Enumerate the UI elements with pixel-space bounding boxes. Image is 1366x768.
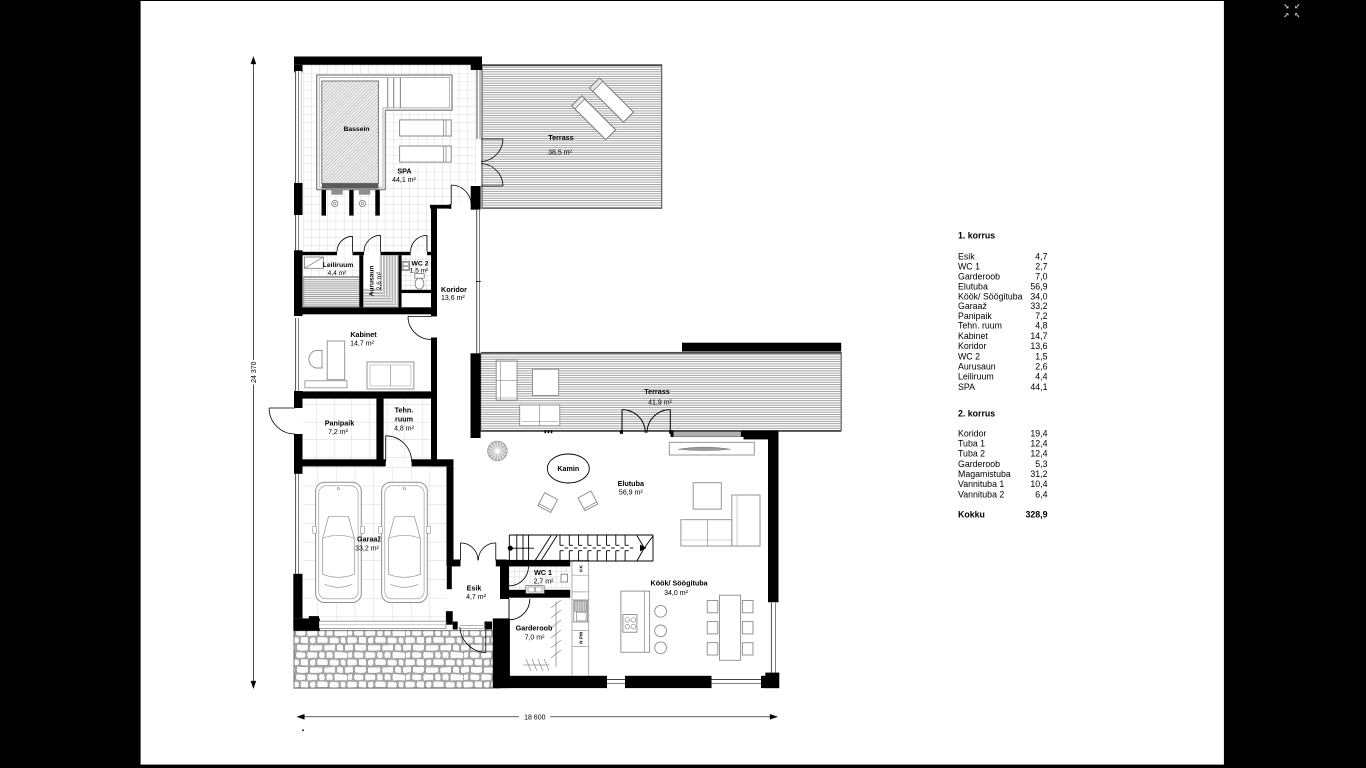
svg-text:N PM: N PM [579, 632, 585, 644]
svg-text:19,4: 19,4 [1030, 428, 1047, 438]
svg-text:33,2: 33,2 [1030, 301, 1047, 311]
svg-text:2,7: 2,7 [1035, 262, 1047, 272]
svg-text:7,0 m²: 7,0 m² [525, 635, 546, 642]
svg-text:33,2 m²: 33,2 m² [355, 546, 379, 553]
svg-text:Aurusaun: Aurusaun [958, 361, 996, 371]
svg-text:KK: KK [579, 565, 585, 572]
svg-text:2,7 m²: 2,7 m² [534, 579, 555, 586]
svg-text:Köök/ Söögituba: Köök/ Söögituba [651, 579, 709, 588]
svg-text:4,7: 4,7 [1035, 252, 1047, 262]
svg-text:14,7 m²: 14,7 m² [350, 341, 374, 348]
svg-text:1,5 m²: 1,5 m² [410, 268, 429, 275]
svg-text:4,4: 4,4 [1035, 371, 1047, 381]
svg-text:WC 1: WC 1 [534, 568, 552, 577]
svg-text:Kabinet: Kabinet [958, 331, 988, 341]
svg-text:Garderoob: Garderoob [958, 272, 1000, 282]
svg-text:Garderoob: Garderoob [958, 459, 1000, 469]
svg-text:Tuba 2: Tuba 2 [958, 449, 985, 459]
svg-text:24 370: 24 370 [251, 361, 258, 383]
svg-text:WC 2: WC 2 [412, 261, 429, 268]
svg-text:Terrass: Terrass [548, 133, 573, 142]
svg-text:SPA: SPA [397, 167, 411, 176]
svg-text:Leiliruum: Leiliruum [323, 262, 354, 269]
svg-text:31,2: 31,2 [1030, 469, 1047, 479]
svg-text:34,0: 34,0 [1030, 291, 1047, 301]
svg-text:12,4: 12,4 [1030, 449, 1047, 459]
svg-text:7,2: 7,2 [1035, 311, 1047, 321]
svg-text:1,5: 1,5 [1035, 351, 1047, 361]
svg-text:41,9 m²: 41,9 m² [648, 400, 672, 407]
svg-text:44,1 m²: 44,1 m² [392, 177, 416, 184]
svg-text:Kamin: Kamin [557, 464, 579, 473]
svg-text:Elutuba: Elutuba [618, 479, 645, 488]
svg-text:14,7: 14,7 [1030, 331, 1047, 341]
svg-text:Koridor: Koridor [441, 285, 467, 294]
svg-text:7,2 m²: 7,2 m² [328, 429, 349, 436]
svg-text:10,4: 10,4 [1030, 479, 1047, 489]
svg-text:4,7 m²: 4,7 m² [466, 594, 487, 601]
svg-text:Elutuba: Elutuba [958, 281, 988, 291]
svg-text:328,9: 328,9 [1025, 510, 1047, 520]
svg-text:WC 2: WC 2 [958, 351, 980, 361]
svg-text:13,6: 13,6 [1030, 341, 1047, 351]
svg-text:ruum: ruum [395, 415, 413, 424]
svg-text:Koridor: Koridor [958, 341, 986, 351]
svg-text:2,6 m²: 2,6 m² [376, 272, 383, 290]
svg-text:Bassein: Bassein [343, 126, 369, 133]
svg-text:Magamistuba: Magamistuba [958, 469, 1011, 479]
svg-text:4,4 m²: 4,4 m² [328, 270, 347, 277]
svg-text:Köök/ Söögituba: Köök/ Söögituba [958, 291, 1023, 301]
svg-text:Esik: Esik [958, 252, 975, 262]
svg-text:SPA: SPA [958, 382, 975, 392]
svg-text:1. korrus: 1. korrus [958, 231, 995, 241]
svg-text:34,0 m²: 34,0 m² [664, 590, 688, 597]
svg-text:WC 1: WC 1 [958, 262, 980, 272]
svg-text:Panipaik: Panipaik [958, 311, 992, 321]
svg-text:44,1: 44,1 [1030, 382, 1047, 392]
svg-text:7,0: 7,0 [1035, 272, 1047, 282]
svg-text:Tehn. ruum: Tehn. ruum [958, 320, 1002, 330]
svg-text:Vannituba 1: Vannituba 1 [958, 479, 1004, 489]
svg-text:Aurusaun: Aurusaun [369, 266, 376, 297]
svg-text:Kokku: Kokku [958, 510, 985, 520]
svg-text:4,8 m²: 4,8 m² [394, 426, 415, 433]
svg-text:38,5 m²: 38,5 m² [548, 150, 572, 157]
svg-text:Garaaž: Garaaž [958, 301, 987, 311]
svg-text:56,9 m²: 56,9 m² [619, 490, 643, 497]
svg-text:Tehn.: Tehn. [395, 406, 414, 415]
svg-text:4,8: 4,8 [1035, 320, 1047, 330]
svg-text:Vannituba 2: Vannituba 2 [958, 489, 1004, 499]
svg-text:Kabinet: Kabinet [350, 330, 377, 339]
svg-text:2. korrus: 2. korrus [958, 409, 995, 419]
svg-text:Koridor: Koridor [958, 428, 986, 438]
svg-text:56,9: 56,9 [1030, 281, 1047, 291]
svg-text:Panipaik: Panipaik [325, 419, 355, 428]
svg-text:Tuba 1: Tuba 1 [958, 439, 985, 449]
svg-text:13,6 m²: 13,6 m² [441, 295, 465, 302]
svg-text:6,4: 6,4 [1035, 489, 1047, 499]
svg-text:2,6: 2,6 [1035, 361, 1047, 371]
svg-text:5,3: 5,3 [1035, 459, 1047, 469]
svg-text:Esik: Esik [467, 584, 482, 593]
svg-text:Terrass: Terrass [644, 387, 669, 396]
svg-text:Leiliruum: Leiliruum [958, 371, 994, 381]
svg-text:12,4: 12,4 [1030, 439, 1047, 449]
svg-text:Garaaž: Garaaž [357, 535, 381, 544]
svg-text:Garderoob: Garderoob [516, 624, 553, 633]
svg-text:18 600: 18 600 [524, 715, 546, 722]
